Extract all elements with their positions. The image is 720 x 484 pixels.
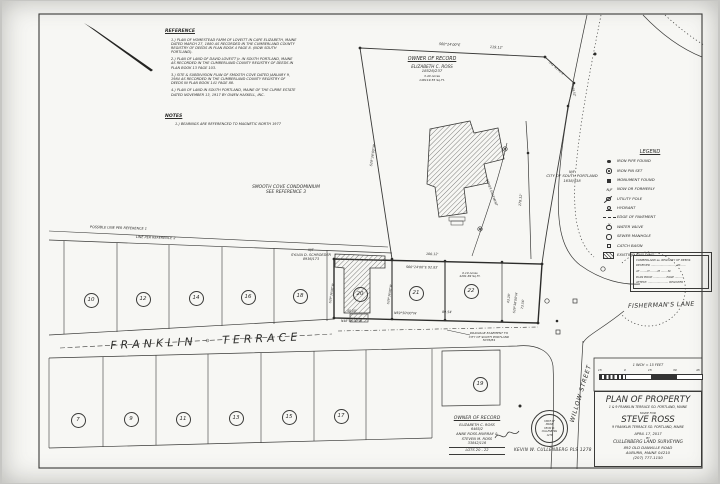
lot22-area-label: 0.10 Acres 4291.69 Sq.Ft. (450, 272, 490, 279)
schroeder-parcel-label: N/F SYLVIA D. SCHROEDER 8936/173 (280, 249, 342, 261)
notes-item: 1.) BEARINGS ARE REFERENCED TO MAGNETIC … (175, 122, 315, 126)
line-ref2-label: LINE PER REFERENCE 2 (136, 235, 176, 240)
north-arrow-icon (84, 23, 153, 72)
plan-paper: REFERENCE 1.) PLAN OF HOMESTEAD FARM OF … (2, 1, 718, 483)
lot-circle-21: 21 (409, 286, 424, 301)
scale-caption: 1 INCH = 15 FEET (594, 363, 702, 367)
dim-bearing: N59°50'00"W (394, 312, 416, 316)
scale-bar (599, 374, 703, 380)
lot-circle-22: 22 (464, 284, 479, 299)
owner-bottom-lots: LOTS 20 - 22 (449, 447, 505, 455)
surveyor-name: KEVIN W. CULLENBERG PLS 1278 (514, 447, 592, 452)
monument-found-icon (602, 177, 617, 183)
owner-bottom-title: OWNER OF RECORD (430, 416, 524, 422)
recording-line: ATTEST: ....................... REGISTER (636, 280, 706, 286)
legend-title: LEGEND (594, 149, 706, 155)
dim-length: 100.12' (426, 253, 439, 257)
legend-label: WATER VALVE (617, 225, 643, 230)
reference-item: 3.) SITE & SUBDIVISION PLAN OF SMOOTH CO… (171, 73, 297, 86)
reference-title: REFERENCE (165, 29, 297, 35)
plan-subtitle: 1 & 9 FRANKLIN TERRACE SO. PORTLAND, MAI… (595, 405, 701, 409)
owner-top-sqft: 148119.55 Sq.Ft. (394, 79, 470, 83)
owner-top-book: 18526/237 (394, 69, 470, 74)
lot-circle-12: 12 (136, 292, 151, 307)
scale-tick: 30 (673, 369, 677, 372)
legend-label: MONUMENT FOUND (617, 178, 655, 183)
dim-length: 119.12' (490, 45, 503, 50)
client-address: 9 FRANKLIN TERRACE SO. PORTLAND, MAINE (595, 425, 701, 429)
legend: LEGEND IRON PIPE FOUND IRON PIN SET MONU… (594, 149, 706, 258)
owner-record-bottom: OWNER OF RECORD ELIZABETH C. ROSS 6465/2… (430, 416, 524, 455)
legend-label: NOW OR FORMERLY (617, 187, 655, 192)
lot-circle-10: 10 (84, 293, 99, 308)
reference-item: 2.) PLAN OF LAND OF DAVID LOVEITT Jr. IN… (171, 57, 297, 70)
drainage-line3: 5076/84 (457, 339, 521, 343)
iron-pin-set-icon (602, 168, 617, 174)
reference-item: 4.) PLAN OF LAND IN SOUTH PORTLAND, MAIN… (171, 88, 297, 96)
utility-pole-icon (602, 196, 617, 202)
lot-circle-19: 19 (473, 377, 488, 392)
scale-tick: 15 (648, 369, 652, 372)
notes-title: NOTES (165, 114, 315, 120)
dim-bearing-length: S60°24'00"E 92.83' (406, 266, 438, 271)
legend-label: UTILITY POLE (617, 197, 642, 202)
legend-label: SEWER MANHOLE (617, 234, 651, 239)
existing-building-icon (602, 252, 617, 258)
lot-circle-14: 14 (189, 291, 204, 306)
lot-circle-16: 16 (241, 290, 256, 305)
legend-label: IRON PIN SET (617, 169, 642, 174)
edge-of-pavement-icon (602, 215, 617, 221)
legend-label: IRON PIPE FOUND (617, 159, 651, 164)
plan-title: PLAN OF PROPERTY (595, 395, 701, 405)
lot-circle-9: 9 (124, 412, 139, 427)
legend-label: HYDRANT (617, 206, 636, 211)
legend-label: CATCH BASIN (617, 244, 643, 249)
schroeder-book: 8936/173 (280, 257, 342, 261)
client-name: STEVE ROSS (595, 415, 701, 425)
drainage-easement-label: DRAINAGE EASEMENT TO CITY OF SOUTH PORTL… (457, 332, 521, 343)
scale-tick: 45 (696, 369, 700, 372)
now-or-formerly-icon: N/F (602, 187, 617, 193)
surveyor-seal: STATE OF MAINE KEVIN W. CULLENBERG 1278 (531, 410, 568, 447)
lot-circle-7: 7 (71, 413, 86, 428)
legend-label: EDGE OF PAVEMENT (617, 215, 656, 220)
hydrant-icon (602, 205, 617, 211)
iron-pipe-found-icon (602, 158, 617, 164)
reference-block: REFERENCE 1.) PLAN OF HOMESTEAD FARM OF … (165, 29, 297, 97)
scale-tick: 15 (598, 369, 602, 372)
catch-basin-icon (602, 243, 617, 249)
owner-bottom-line: 33842/116 (430, 441, 524, 445)
lot-circle-18: 18 (293, 289, 308, 304)
title-block: PLAN OF PROPERTY 1 & 9 FRANKLIN TERRACE … (594, 391, 702, 467)
smooth-cove-label: SMOOTH COVE CONDOMINIUM SEE REFERENCE 3 (238, 185, 334, 196)
lot22-sqft: 4291.69 Sq.Ft. (450, 275, 490, 278)
notes-block: NOTES 1.) BEARINGS ARE REFERENCED TO MAG… (165, 114, 315, 126)
lot-circle-15: 15 (282, 410, 297, 425)
registry-recording-box: CUMBERLAND ss. REGISTRY OF DEEDS RECEIVE… (630, 252, 712, 292)
lot-circle-11: 11 (176, 412, 191, 427)
survey-plan-sheet: REFERENCE 1.) PLAN OF HOMESTEAD FARM OF … (0, 0, 720, 484)
owner-record-top: OWNER OF RECORD ELIZABETH C. ROSS 18526/… (394, 57, 470, 83)
owner-bottom-line: 6465/2 (430, 427, 524, 431)
boundary-monument-dots (333, 47, 597, 408)
dim-length: 40.00' (347, 310, 357, 314)
owner-top-title: OWNER OF RECORD (394, 57, 470, 63)
scale-tick: 0 (624, 369, 626, 372)
water-valve-icon (602, 224, 617, 230)
dim-length: 89.54' (442, 311, 452, 315)
lot-circle-17: 17 (334, 409, 349, 424)
firm-phone: (207) 777-1150 (595, 455, 701, 460)
dim-length: 44.52' (570, 87, 575, 97)
lot-circle-13: 13 (229, 411, 244, 426)
reference-item: 1.) PLAN OF HOMESTEAD FARM OF LOVEITT IN… (171, 38, 297, 55)
smooth-cove-line2: SEE REFERENCE 3 (238, 190, 334, 195)
dim-bearing: N48°58'30"W (341, 320, 362, 324)
lot-circle-20: 20 (353, 287, 368, 302)
sewer-manhole-icon (602, 234, 617, 240)
